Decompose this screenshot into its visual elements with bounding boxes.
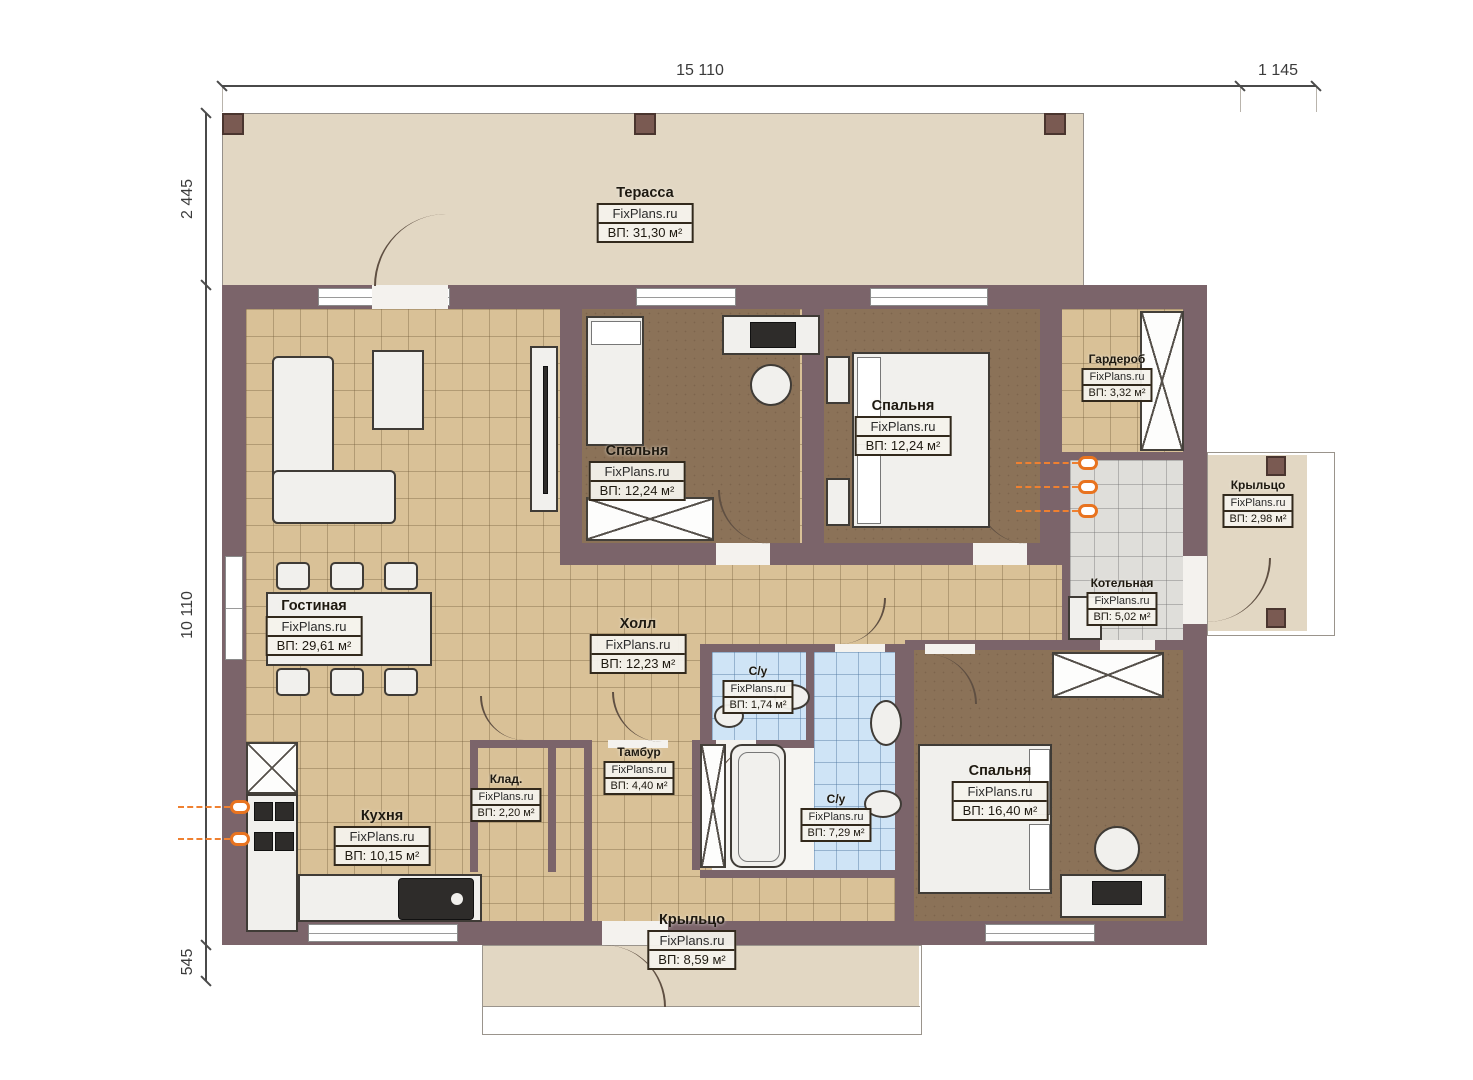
window xyxy=(985,924,1095,942)
watermark: FixPlans.ru xyxy=(336,828,429,845)
watermark: FixPlans.ru xyxy=(1083,370,1150,384)
burner-icon xyxy=(254,802,273,821)
column xyxy=(1266,608,1286,628)
room-label-kitchen: Кухня FixPlans.ru ВП: 10,15 м² xyxy=(334,808,431,866)
dim-extension xyxy=(222,86,223,112)
watermark: FixPlans.ru xyxy=(268,618,361,635)
wall-interior xyxy=(548,740,556,872)
room-area: ВП: 16,40 м² xyxy=(954,800,1047,819)
room-name: Крыльцо xyxy=(1222,478,1293,492)
dim-label-terrace-depth: 2 445 xyxy=(179,179,197,219)
chair xyxy=(276,668,310,696)
room-name: Кухня xyxy=(334,808,431,824)
window xyxy=(225,556,243,660)
tv-icon xyxy=(543,366,548,494)
room-area: ВП: 4,40 м² xyxy=(605,777,672,793)
watermark: FixPlans.ru xyxy=(1088,594,1155,608)
dim-label-width-main: 15 110 xyxy=(676,62,724,80)
radiator-pipe-line xyxy=(1016,486,1078,488)
coffee-table xyxy=(372,350,424,430)
stove xyxy=(252,800,294,858)
wall-interior xyxy=(470,740,592,748)
room-name: Крыльцо xyxy=(647,912,736,928)
watermark: FixPlans.ru xyxy=(954,783,1047,800)
office-chair xyxy=(750,364,792,406)
watermark: FixPlans.ru xyxy=(472,790,539,804)
door-opening-wc-big xyxy=(835,644,885,652)
bathtub xyxy=(730,744,786,868)
desk xyxy=(1060,874,1166,918)
watermark: FixPlans.ru xyxy=(591,463,684,480)
room-label-living: Гостиная FixPlans.ru ВП: 29,61 м² xyxy=(266,598,363,656)
room-name: Гардероб xyxy=(1081,352,1152,366)
radiator-pipe-line xyxy=(178,838,230,840)
dim-label-height-main: 10 110 xyxy=(179,591,197,639)
room-label-bedroom-1: Спальня FixPlans.ru ВП: 12,24 м² xyxy=(589,443,686,501)
nightstand xyxy=(826,478,850,526)
room-name: Тамбур xyxy=(603,745,674,759)
wall-interior xyxy=(584,740,592,921)
dim-line-left xyxy=(205,113,207,981)
sink-drain-icon xyxy=(451,893,463,905)
radiator-pipe-line xyxy=(1016,462,1078,464)
room-label-porch-bottom: Крыльцо FixPlans.ru ВП: 8,59 м² xyxy=(647,912,736,970)
radiator-pipe-line xyxy=(178,806,230,808)
wardrobe xyxy=(586,497,714,541)
room-name: Гостиная xyxy=(266,598,363,614)
radiator-icon xyxy=(1078,480,1098,494)
dim-extension xyxy=(1316,86,1317,112)
door-opening-boiler xyxy=(1183,556,1207,624)
room-area: ВП: 1,74 м² xyxy=(724,696,791,712)
column xyxy=(1044,113,1066,135)
nightstand xyxy=(826,356,850,404)
radiator-icon xyxy=(230,800,250,814)
radiator-pipe-line xyxy=(1016,510,1078,512)
watermark: FixPlans.ru xyxy=(599,205,692,222)
door-opening-bedroom-3 xyxy=(925,644,975,654)
kitchen-cabinet xyxy=(246,742,298,794)
watermark: FixPlans.ru xyxy=(592,636,685,653)
room-area: ВП: 12,23 м² xyxy=(592,653,685,672)
chair xyxy=(276,562,310,590)
room-name: Терасса xyxy=(597,185,694,201)
room-label-boiler: Котельная FixPlans.ru ВП: 5,02 м² xyxy=(1086,576,1157,626)
window xyxy=(870,288,988,306)
watermark: FixPlans.ru xyxy=(802,810,869,824)
door-opening-terrace xyxy=(372,285,448,309)
room-area: ВП: 10,15 м² xyxy=(336,845,429,864)
room-name: С/у xyxy=(722,664,793,678)
radiator-icon xyxy=(1078,456,1098,470)
bathtub-inner xyxy=(738,752,780,862)
laptop-icon xyxy=(1092,881,1142,905)
wall-interior xyxy=(560,309,582,543)
wall-interior xyxy=(692,740,700,870)
room-name: Холл xyxy=(590,616,687,632)
armchair xyxy=(1094,826,1140,872)
room-name: Спальня xyxy=(855,398,952,414)
room-area: ВП: 31,30 м² xyxy=(599,222,692,241)
room-label-klad: Клад. FixPlans.ru ВП: 2,20 м² xyxy=(470,772,541,822)
wall-interior xyxy=(1040,309,1062,543)
pillow xyxy=(591,321,641,345)
room-name: С/у xyxy=(800,792,871,806)
dim-extension xyxy=(1240,86,1241,112)
room-area: ВП: 5,02 м² xyxy=(1088,608,1155,624)
room-name: Спальня xyxy=(589,443,686,459)
radiator-icon xyxy=(1078,504,1098,518)
window xyxy=(308,924,458,942)
wall-interior xyxy=(700,644,712,748)
watermark: FixPlans.ru xyxy=(1224,496,1291,510)
room-name: Котельная xyxy=(1086,576,1157,590)
burner-icon xyxy=(275,802,294,821)
chair xyxy=(330,668,364,696)
room-area: ВП: 7,29 м² xyxy=(802,824,869,840)
room-label-terrace: Терасса FixPlans.ru ВП: 31,30 м² xyxy=(597,185,694,243)
chair xyxy=(330,562,364,590)
room-label-wardrobe: Гардероб FixPlans.ru ВП: 3,32 м² xyxy=(1081,352,1152,402)
dim-line-top xyxy=(222,85,1316,87)
column xyxy=(1266,456,1286,476)
radiator-icon xyxy=(230,832,250,846)
room-label-hall: Холл FixPlans.ru ВП: 12,23 м² xyxy=(590,616,687,674)
watermark: FixPlans.ru xyxy=(857,418,950,435)
burner-icon xyxy=(254,832,273,851)
room-area: ВП: 29,61 м² xyxy=(268,635,361,654)
washbasin xyxy=(870,700,902,746)
pillow xyxy=(857,444,881,524)
room-label-porch-right: Крыльцо FixPlans.ru ВП: 2,98 м² xyxy=(1222,478,1293,528)
desk xyxy=(722,315,820,355)
tv-stand xyxy=(530,346,558,512)
kitchen-sink xyxy=(398,878,474,920)
room-name: Спальня xyxy=(952,763,1049,779)
room-area: ВП: 2,98 м² xyxy=(1224,510,1291,526)
bath-cabinet xyxy=(700,744,726,868)
room-label-bedroom-2: Спальня FixPlans.ru ВП: 12,24 м² xyxy=(855,398,952,456)
wardrobe xyxy=(1052,652,1164,698)
room-area: ВП: 12,24 м² xyxy=(591,480,684,499)
window xyxy=(636,288,736,306)
door-opening-bedroom-2 xyxy=(973,543,1027,565)
door-opening-bedroom-1 xyxy=(716,543,770,565)
watermark: FixPlans.ru xyxy=(605,763,672,777)
door-opening-boiler-hall xyxy=(1100,640,1155,650)
pillow xyxy=(1029,824,1050,890)
chair xyxy=(384,562,418,590)
dim-label-porch-depth: 545 xyxy=(179,949,197,976)
chair xyxy=(384,668,418,696)
wall-interior xyxy=(895,644,914,921)
wall-interior xyxy=(700,870,895,878)
room-label-tambur: Тамбур FixPlans.ru ВП: 4,40 м² xyxy=(603,745,674,795)
burner-icon xyxy=(275,832,294,851)
watermark: FixPlans.ru xyxy=(724,682,791,696)
room-area: ВП: 3,32 м² xyxy=(1083,384,1150,400)
room-area: ВП: 2,20 м² xyxy=(472,804,539,820)
room-name: Клад. xyxy=(470,772,541,786)
dim-label-width-porch: 1 145 xyxy=(1258,62,1298,80)
room-area: ВП: 8,59 м² xyxy=(649,949,734,968)
room-label-wc-big: С/у FixPlans.ru ВП: 7,29 м² xyxy=(800,792,871,842)
floor-plan-canvas: 15 110 1 145 2 445 10 110 545 xyxy=(0,0,1473,1080)
room-label-wc-small: С/у FixPlans.ru ВП: 1,74 м² xyxy=(722,664,793,714)
column xyxy=(222,113,244,135)
room-label-bedroom-3: Спальня FixPlans.ru ВП: 16,40 м² xyxy=(952,763,1049,821)
bed-single xyxy=(586,316,644,446)
sofa-chaise xyxy=(272,470,396,524)
laptop-icon xyxy=(750,322,796,348)
room-area: ВП: 12,24 м² xyxy=(857,435,950,454)
watermark: FixPlans.ru xyxy=(649,932,734,949)
column xyxy=(634,113,656,135)
